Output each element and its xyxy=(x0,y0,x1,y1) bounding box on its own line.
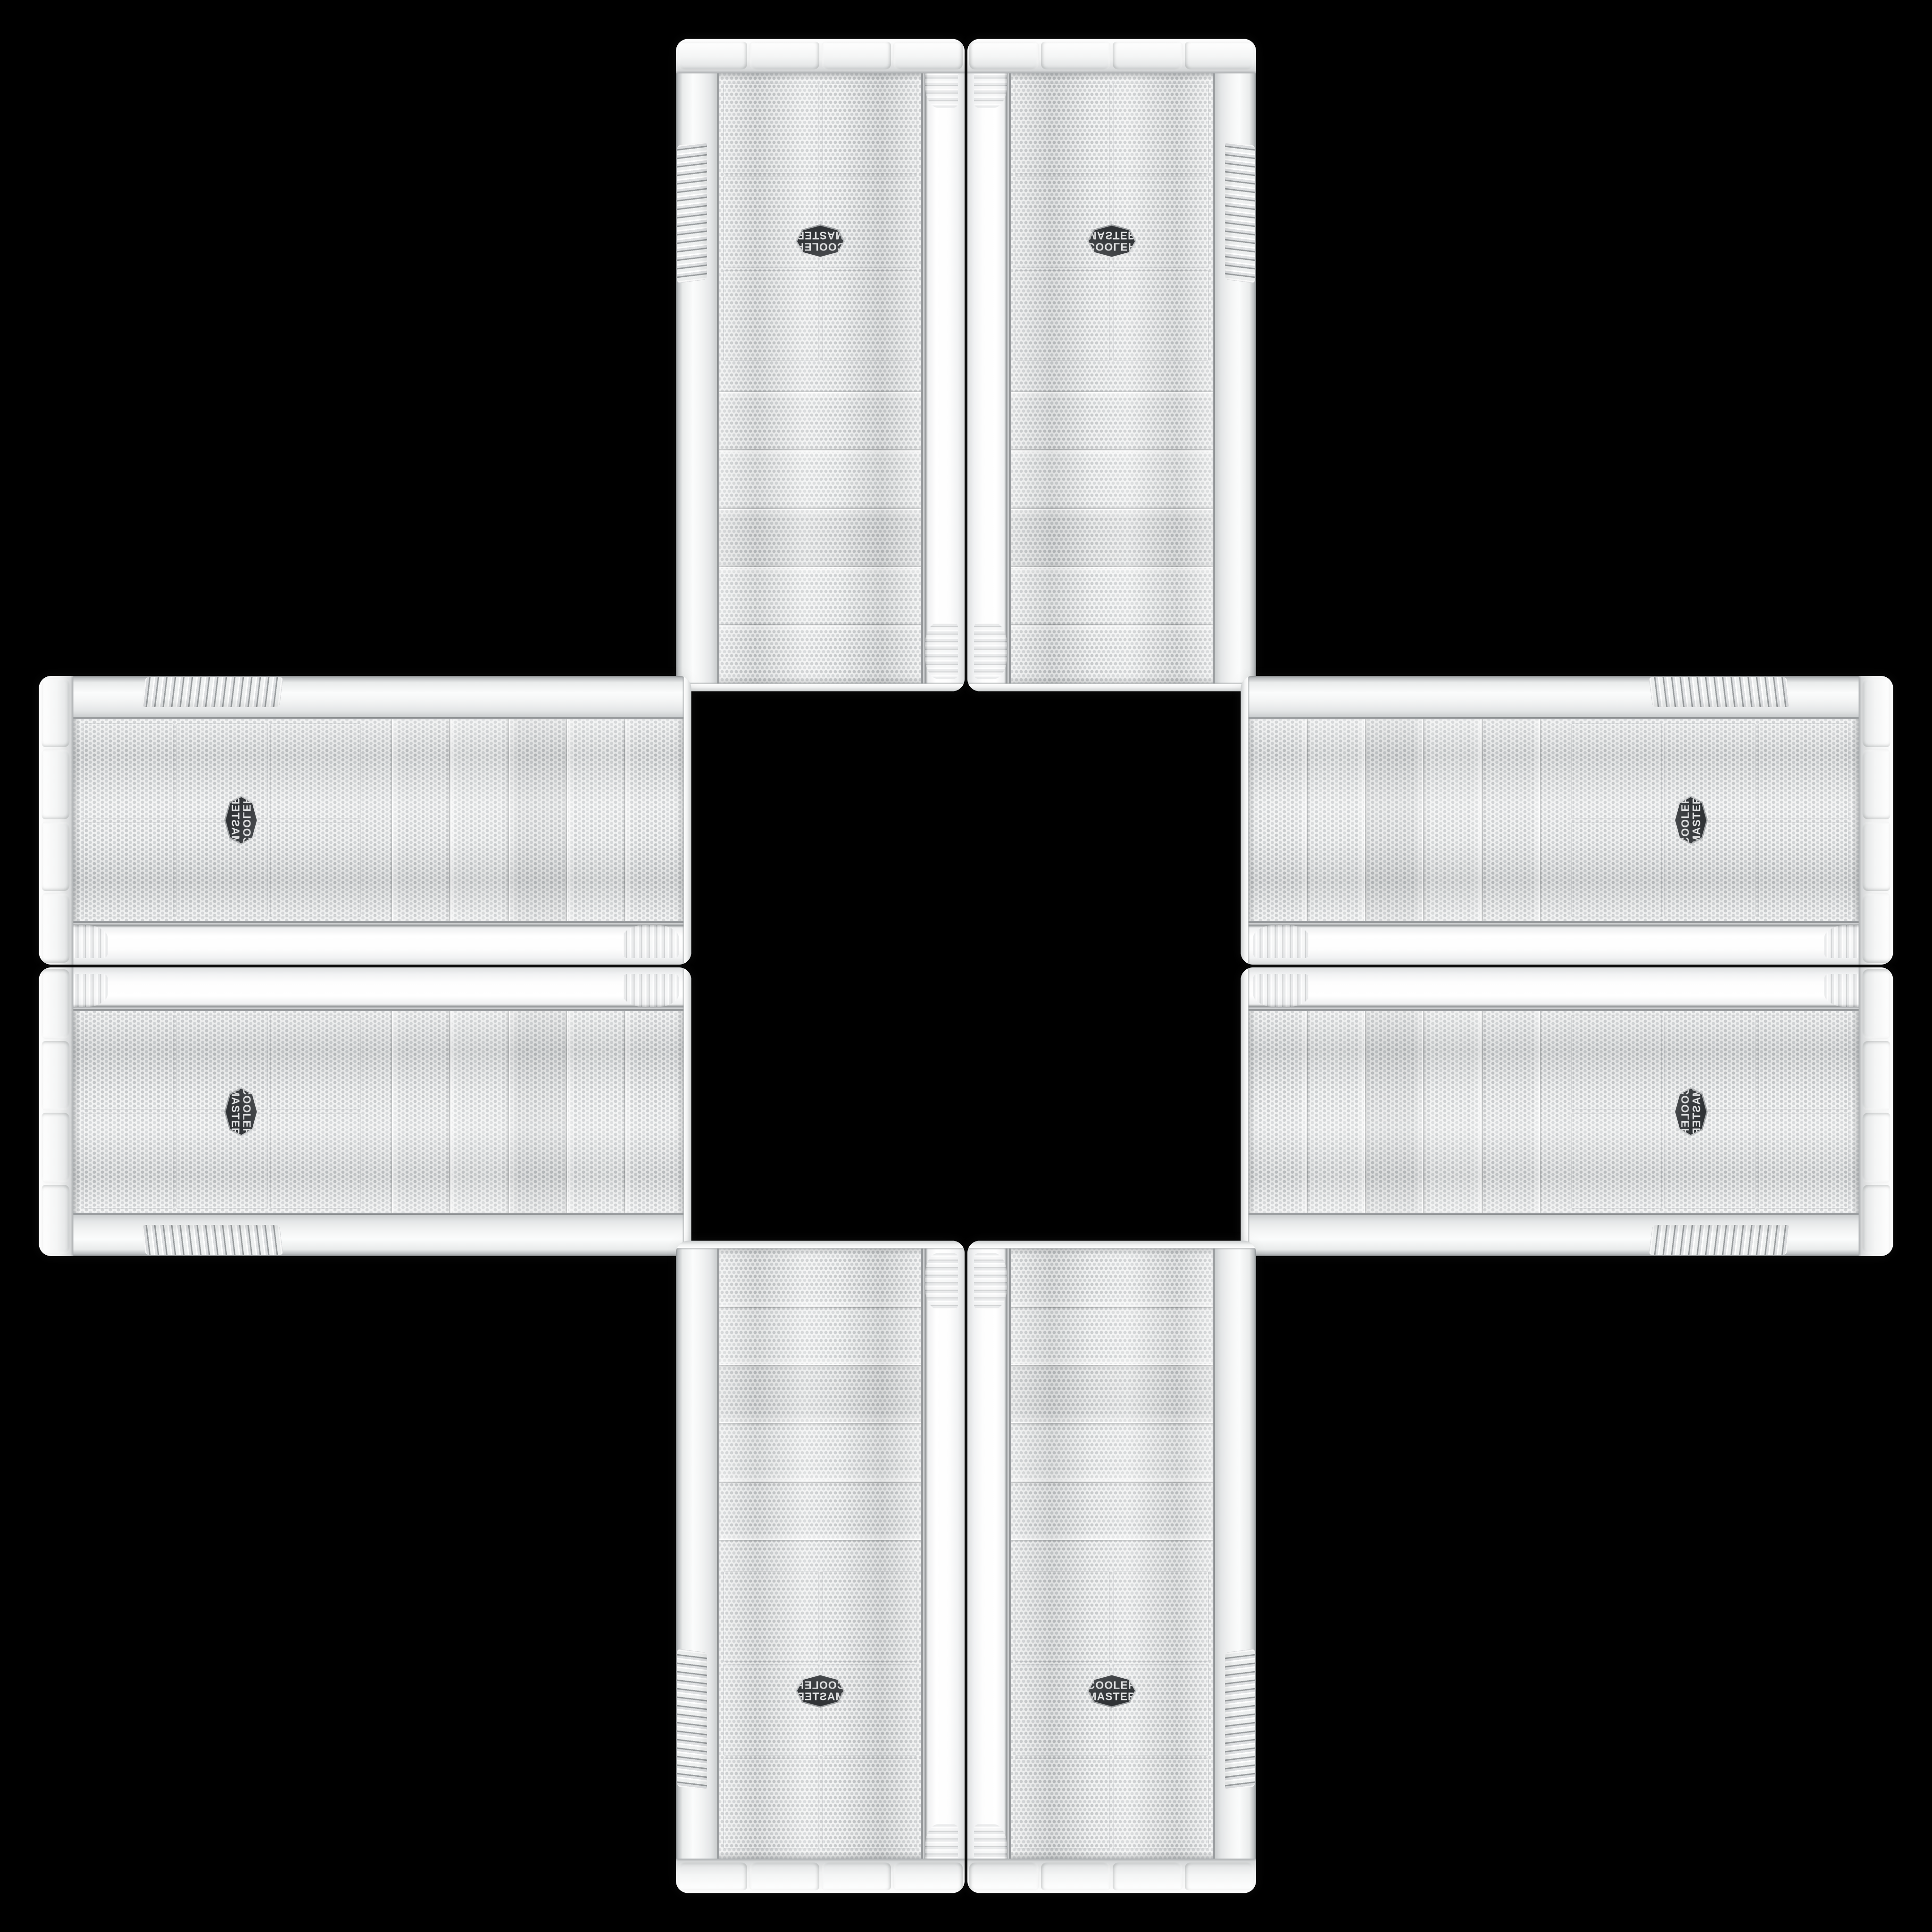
case-top-cap xyxy=(1859,676,1893,965)
case-outer-side-rail xyxy=(39,1214,691,1256)
logo-text-line: COOLER xyxy=(796,241,845,253)
case-top-cap xyxy=(676,1859,965,1893)
drive-bay-cover xyxy=(719,625,921,684)
cooler-master-logo: COOLER MASTER xyxy=(1087,225,1136,258)
fan-mount-cell xyxy=(822,1571,918,1662)
cooler-master-logo-face: COOLER MASTER xyxy=(226,797,257,843)
pc-case-bottom-right: COOLER MASTER xyxy=(967,1241,1256,1893)
drive-bay-covers xyxy=(1011,392,1213,684)
fan-mount-cell xyxy=(83,723,174,819)
top-cap-segment xyxy=(822,1863,891,1890)
drive-bay-cover xyxy=(1424,719,1482,921)
cooler-master-logo: COOLER MASTER xyxy=(796,225,845,258)
case-bottom-cap xyxy=(684,676,691,965)
fan-mount-cell xyxy=(83,822,174,918)
logo-text-line: MASTER xyxy=(796,1691,844,1702)
top-cap-segment xyxy=(42,749,70,819)
top-cap-segment xyxy=(42,822,70,891)
top-cap-segment xyxy=(42,1113,70,1183)
case-inner-side-rail xyxy=(967,39,1010,691)
drive-bay-cover xyxy=(1249,1011,1307,1213)
cooler-master-logo-face: COOLER MASTER xyxy=(1089,226,1135,257)
cooler-master-logo-face: COOLER MASTER xyxy=(1089,1675,1135,1707)
logo-text-line: COOLER xyxy=(241,1087,253,1136)
fan-mount-cell xyxy=(83,1015,174,1111)
vent-ribs xyxy=(1649,1225,1790,1255)
fan-mount-cell xyxy=(1571,1015,1662,1111)
top-cap-segment xyxy=(42,1041,70,1110)
fan-mount-cell xyxy=(1571,723,1662,819)
mesh-front-panel: COOLER MASTER xyxy=(1249,718,1859,922)
mesh-front-panel: COOLER MASTER xyxy=(718,1249,922,1859)
top-cap-segment xyxy=(1863,1113,1890,1183)
drive-bay-cover xyxy=(1424,1011,1482,1213)
fan-mount-cell xyxy=(723,83,819,174)
top-cap-segment xyxy=(1113,42,1183,70)
logo-text-line: COOLER xyxy=(241,796,253,845)
case-bottom-cap xyxy=(676,684,965,691)
fan-mount-cell xyxy=(1758,723,1849,819)
top-cap-segment xyxy=(1113,1863,1183,1890)
case-top-cap xyxy=(676,39,965,74)
fan-mount-outlines xyxy=(723,83,917,361)
top-cap-segment xyxy=(1863,969,1890,1039)
fan-mount-cell xyxy=(270,822,361,918)
top-cap-segment xyxy=(969,1863,1039,1890)
top-cap-segment xyxy=(749,42,819,70)
top-cap-segment xyxy=(42,1185,70,1254)
drive-bay-cover xyxy=(719,392,921,450)
mesh-front-panel: COOLER MASTER xyxy=(1010,74,1214,684)
drive-bay-cover xyxy=(1011,625,1213,684)
drive-bay-covers xyxy=(392,1011,684,1213)
cooler-master-logo: COOLER MASTER xyxy=(225,796,258,845)
drive-bay-cover xyxy=(1011,567,1213,625)
top-cap-segment xyxy=(893,42,963,70)
drive-bay-cover xyxy=(1482,719,1541,921)
fan-mount-outlines xyxy=(1015,83,1209,361)
cooler-master-logo-face: COOLER MASTER xyxy=(797,226,843,257)
top-cap-segment xyxy=(749,1863,819,1890)
case-bottom-cap xyxy=(1241,967,1249,1256)
drive-bay-cover xyxy=(719,508,921,567)
drive-bay-cover xyxy=(1011,1482,1213,1541)
case-top-cap xyxy=(1859,967,1893,1256)
fan-mount-cell xyxy=(1015,83,1111,174)
logo-text-line: MASTER xyxy=(1087,230,1136,241)
drive-bay-cover xyxy=(1011,450,1213,508)
pc-case-left-top: COOLER MASTER xyxy=(39,676,691,965)
top-cap-segment xyxy=(969,42,1039,70)
fan-mount-cell xyxy=(723,270,819,361)
top-cap-segment xyxy=(42,893,70,963)
drive-bay-cover xyxy=(625,719,684,921)
cooler-master-logo: COOLER MASTER xyxy=(1674,1087,1708,1136)
logo-text-line: COOLER xyxy=(796,1680,845,1691)
logo-text-line: COOLER xyxy=(1087,241,1136,253)
case-inner-side-rail xyxy=(922,39,965,691)
vent-ribs xyxy=(677,142,707,283)
vent-ribs xyxy=(1225,1649,1255,1790)
product-collage-canvas: COOLER MASTER xyxy=(0,0,1932,1932)
fan-mount-cell xyxy=(1113,270,1209,361)
fan-mount-cell xyxy=(270,723,361,819)
case-inner-side-rail xyxy=(39,967,691,1010)
drive-bay-cover xyxy=(1011,1365,1213,1424)
top-cap-segment xyxy=(678,1863,747,1890)
fan-mount-cell xyxy=(1015,270,1111,361)
case-bottom-cap xyxy=(684,967,691,1256)
vent-ribs xyxy=(142,677,283,707)
logo-text-line: COOLER xyxy=(1680,1087,1691,1136)
drive-bay-cover xyxy=(392,1011,450,1213)
fan-mount-cell xyxy=(1571,822,1662,918)
drive-bay-cover xyxy=(508,719,567,921)
fan-mount-cell xyxy=(723,1571,819,1662)
fan-mount-outlines xyxy=(1571,723,1849,917)
mesh-front-panel: COOLER MASTER xyxy=(1010,1249,1214,1859)
drive-bay-covers xyxy=(1011,1249,1213,1541)
cooler-master-logo-face: COOLER MASTER xyxy=(1675,1089,1707,1135)
pc-case-bottom-left: COOLER MASTER xyxy=(676,1241,965,1893)
mesh-front-panel: COOLER MASTER xyxy=(718,74,922,684)
drive-bay-cover xyxy=(719,567,921,625)
fan-mount-cell xyxy=(723,1758,819,1849)
fan-mount-outlines xyxy=(83,723,361,917)
drive-bay-covers xyxy=(392,719,684,921)
drive-bay-cover xyxy=(450,719,508,921)
top-cap-segment xyxy=(1863,893,1890,963)
drive-bay-cover xyxy=(1011,508,1213,567)
drive-bay-cover xyxy=(450,1011,508,1213)
fan-mount-cell xyxy=(270,1113,361,1209)
logo-text-line: MASTER xyxy=(1691,796,1702,844)
fan-mount-cell xyxy=(270,1015,361,1111)
case-outer-side-rail xyxy=(1241,676,1893,718)
fan-mount-outlines xyxy=(83,1015,361,1209)
case-top-cap xyxy=(967,39,1256,74)
cooler-master-logo-face: COOLER MASTER xyxy=(797,1675,843,1707)
logo-text-line: COOLER xyxy=(1087,1680,1136,1691)
fan-mount-outlines xyxy=(1571,1015,1849,1209)
cooler-master-logo: COOLER MASTER xyxy=(1674,796,1708,845)
mesh-front-panel: COOLER MASTER xyxy=(74,718,684,922)
drive-bay-cover xyxy=(1011,1424,1213,1482)
case-inner-side-rail xyxy=(1241,922,1893,965)
top-cap-segment xyxy=(1185,42,1254,70)
case-outer-side-rail xyxy=(1214,1241,1256,1893)
fan-mount-cell xyxy=(1015,1571,1111,1662)
top-cap-segment xyxy=(1041,1863,1110,1890)
drive-bay-cover xyxy=(719,1424,921,1482)
cooler-master-logo: COOLER MASTER xyxy=(225,1087,258,1136)
fan-mount-cell xyxy=(822,1758,918,1849)
top-cap-segment xyxy=(678,42,747,70)
drive-bay-cover xyxy=(567,719,625,921)
top-cap-segment xyxy=(1863,749,1890,819)
case-top-cap xyxy=(967,1859,1256,1893)
case-outer-side-rail xyxy=(1241,1214,1893,1256)
logo-text-line: MASTER xyxy=(1691,1087,1702,1136)
vent-ribs xyxy=(1225,142,1255,283)
case-bottom-cap xyxy=(1241,676,1249,965)
pc-case-top-left: COOLER MASTER xyxy=(676,39,965,691)
drive-bay-cover xyxy=(1249,719,1307,921)
pc-case-top-right: COOLER MASTER xyxy=(967,39,1256,691)
fan-mount-cell xyxy=(1758,822,1849,918)
vent-ribs xyxy=(142,1225,283,1255)
top-cap-segment xyxy=(1185,1863,1254,1890)
mesh-front-panel: COOLER MASTER xyxy=(1249,1010,1859,1214)
case-outer-side-rail xyxy=(39,676,691,718)
case-top-cap xyxy=(39,967,74,1256)
drive-bay-cover xyxy=(1365,1011,1424,1213)
cooler-master-logo: COOLER MASTER xyxy=(796,1674,845,1708)
drive-bay-covers xyxy=(719,392,921,684)
case-bottom-cap xyxy=(676,1241,965,1249)
fan-mount-cell xyxy=(1113,1758,1209,1849)
fan-mount-cell xyxy=(1571,1113,1662,1209)
logo-text-line: COOLER xyxy=(1680,796,1691,845)
fan-mount-outlines xyxy=(723,1571,917,1849)
top-cap-segment xyxy=(1863,678,1890,747)
drive-bay-covers xyxy=(719,1249,921,1541)
top-cap-segment xyxy=(42,969,70,1039)
top-cap-segment xyxy=(42,678,70,747)
case-outer-side-rail xyxy=(676,39,718,691)
drive-bay-covers xyxy=(1249,719,1541,921)
case-inner-side-rail xyxy=(1241,967,1893,1010)
fan-mount-cell xyxy=(1113,1571,1209,1662)
drive-bay-cover xyxy=(567,1011,625,1213)
drive-bay-cover xyxy=(392,719,450,921)
logo-text-line: MASTER xyxy=(230,796,241,844)
drive-bay-cover xyxy=(1011,1307,1213,1365)
top-cap-segment xyxy=(1041,42,1110,70)
drive-bay-cover xyxy=(1307,719,1365,921)
case-bottom-cap xyxy=(967,1241,1256,1249)
cooler-master-logo-face: COOLER MASTER xyxy=(226,1089,257,1135)
top-cap-segment xyxy=(1863,1185,1890,1254)
fan-mount-outlines xyxy=(1015,1571,1209,1849)
drive-bay-cover xyxy=(1011,1249,1213,1307)
pc-case-left-bottom: COOLER MASTER xyxy=(39,967,691,1256)
fan-mount-cell xyxy=(822,83,918,174)
case-inner-side-rail xyxy=(967,1241,1010,1893)
fan-mount-cell xyxy=(822,270,918,361)
drive-bay-cover xyxy=(625,1011,684,1213)
drive-bay-cover xyxy=(508,1011,567,1213)
case-outer-side-rail xyxy=(1214,39,1256,691)
fan-mount-cell xyxy=(1758,1015,1849,1111)
logo-text-line: MASTER xyxy=(1087,1691,1136,1702)
case-outer-side-rail xyxy=(676,1241,718,1893)
case-inner-side-rail xyxy=(39,922,691,965)
drive-bay-cover xyxy=(719,1482,921,1541)
vent-ribs xyxy=(1649,677,1790,707)
pc-case-right-bottom: COOLER MASTER xyxy=(1241,967,1893,1256)
case-inner-side-rail xyxy=(922,1241,965,1893)
top-cap-segment xyxy=(1863,822,1890,891)
pc-case-right-top: COOLER MASTER xyxy=(1241,676,1893,965)
top-cap-segment xyxy=(1863,1041,1890,1110)
drive-bay-cover xyxy=(1307,1011,1365,1213)
case-bottom-cap xyxy=(967,684,1256,691)
fan-mount-cell xyxy=(1758,1113,1849,1209)
drive-bay-cover xyxy=(719,1249,921,1307)
fan-mount-cell xyxy=(1015,1758,1111,1849)
drive-bay-covers xyxy=(1249,1011,1541,1213)
drive-bay-cover xyxy=(1365,719,1424,921)
drive-bay-cover xyxy=(1011,392,1213,450)
case-top-cap xyxy=(39,676,74,965)
vent-ribs xyxy=(677,1649,707,1790)
top-cap-segment xyxy=(893,1863,963,1890)
drive-bay-cover xyxy=(1482,1011,1541,1213)
drive-bay-cover xyxy=(719,450,921,508)
top-cap-segment xyxy=(822,42,891,70)
mesh-front-panel: COOLER MASTER xyxy=(74,1010,684,1214)
fan-mount-cell xyxy=(1113,83,1209,174)
drive-bay-cover xyxy=(719,1307,921,1365)
logo-text-line: MASTER xyxy=(230,1087,241,1136)
cooler-master-logo: COOLER MASTER xyxy=(1087,1674,1136,1708)
drive-bay-cover xyxy=(719,1365,921,1424)
fan-mount-cell xyxy=(83,1113,174,1209)
logo-text-line: MASTER xyxy=(796,230,844,241)
cooler-master-logo-face: COOLER MASTER xyxy=(1675,797,1707,843)
